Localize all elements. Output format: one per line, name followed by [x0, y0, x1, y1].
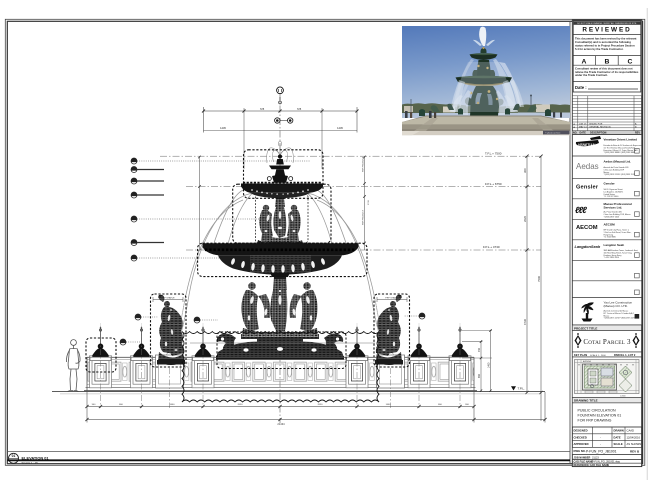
svg-text:▲: ▲ [573, 122, 575, 125]
svg-text:FRP PRODUCT: FRP PRODUCT [363, 209, 365, 225]
svg-text:T +852 2830 3500: T +852 2830 3500 [604, 257, 619, 259]
svg-text:COTAI PARCEL 3: COTAI PARCEL 3 [583, 338, 631, 346]
svg-text:Consultant(s) and is accorded: Consultant(s) and is accorded the follow… [575, 40, 631, 44]
svg-text:REV B: REV B [630, 449, 640, 453]
svg-text:ISSUED FOR: ISSUED FOR [589, 123, 603, 125]
svg-text:Aedas: Aedas [576, 162, 599, 171]
svg-text:DRAWN: DRAWN [614, 429, 624, 433]
svg-text:4730: 4730 [523, 319, 527, 325]
svg-text:FOR FRP DRAWING: FOR FRP DRAWING [578, 419, 612, 423]
svg-text:PROJECT TITLE: PROJECT TITLE [574, 326, 597, 330]
svg-text:This document has been revised: This document has been revised by the re… [575, 37, 636, 41]
svg-text:AS SHOWN: AS SHOWN [627, 442, 642, 446]
svg-text:Aedas (Macau) Ltd.: Aedas (Macau) Ltd. [604, 160, 632, 164]
svg-text:7500: 7500 [537, 276, 541, 282]
svg-text:31123: 31123 [592, 456, 599, 459]
svg-text:▲: ▲ [573, 125, 575, 128]
svg-text:FRP PRODUCT: FRP PRODUCT [363, 156, 365, 172]
svg-text:1460: 1460 [488, 362, 491, 368]
svg-text:LangdonSeah: LangdonSeah [575, 244, 601, 249]
svg-text:2030: 2030 [318, 404, 324, 406]
svg-text:FRP STATUE: FRP STATUE [161, 297, 175, 300]
svg-text:© photo archive: © photo archive [545, 132, 561, 135]
svg-text:T 2 3105 8686: T 2 3105 8686 [604, 237, 616, 239]
svg-text:T (853) 2882 8888 F (853) 288: T (853) 2882 8888 F (853) 2882 8889 [604, 152, 636, 154]
svg-text:T.P.L.: T.P.L. [518, 387, 525, 391]
svg-text:Date :: Date : [575, 85, 587, 90]
svg-text:DWG NO.: DWG NO. [574, 449, 586, 453]
svg-text:1460: 1460 [386, 404, 392, 406]
svg-text:DRAWING TITLE: DRAWING TITLE [574, 399, 598, 403]
svg-text:PARCEL 1, LOT 2: PARCEL 1, LOT 2 [614, 353, 636, 357]
svg-text:01: 01 [12, 454, 16, 458]
svg-text:SCALE 1 : 2000: SCALE 1 : 2000 [590, 354, 606, 357]
svg-text:Langdon Seah: Langdon Seah [604, 243, 625, 247]
svg-text:850: 850 [478, 373, 481, 378]
svg-text:P-FUN_PO_JB1001: P-FUN_PO_JB1001 [586, 449, 617, 453]
svg-text:CAAD: CAAD [627, 429, 635, 433]
svg-text:F.P.L.+ 6750: F.P.L.+ 6750 [485, 182, 502, 186]
svg-text:relieve the Trade Contractor o: relieve the Trade Contractor of its resp… [575, 70, 639, 74]
svg-text:⋮: ⋮ [418, 323, 420, 326]
svg-text:12/04/2016: 12/04/2016 [627, 435, 641, 439]
svg-text:AECOM: AECOM [576, 225, 598, 231]
svg-text:725: 725 [260, 107, 265, 111]
svg-text:JUN 15: JUN 15 [579, 123, 587, 125]
svg-text:DESIGNED: DESIGNED [574, 429, 588, 433]
svg-text:300: 300 [523, 168, 527, 173]
svg-text:B: B [605, 58, 610, 65]
svg-text:Gensler: Gensler [576, 185, 599, 191]
svg-text:C: C [628, 58, 633, 65]
svg-text:725: 725 [297, 107, 302, 111]
svg-text:AVENIDA: AVENIDA [583, 360, 592, 363]
svg-text:DATE: DATE [614, 435, 621, 439]
svg-text:T (853) 2833 1133 F (853) 283: T (853) 2833 1133 F (853) 2833 1552 [604, 174, 635, 176]
svg-text:F.P.L.+ 4730: F.P.L.+ 4730 [483, 245, 500, 249]
svg-text:T (853) 2837 2623: T (853) 2837 2623 [604, 216, 620, 218]
svg-text:21434: 21434 [277, 422, 285, 426]
svg-text:450: 450 [478, 347, 481, 352]
svg-text:(Macau) CO. LTD.: (Macau) CO. LTD. [604, 304, 628, 308]
svg-text:Gensler: Gensler [604, 182, 616, 186]
svg-text:⋮: ⋮ [356, 323, 358, 326]
svg-text:-: - [600, 436, 601, 439]
svg-text:T 1 213 327 3600: T 1 213 327 3600 [604, 196, 619, 198]
svg-text:5.4 for action by the Trade Co: 5.4 for action by the Trade Contractor. [575, 47, 624, 51]
svg-text:under the Trade Contract.: under the Trade Contract. [575, 73, 608, 77]
svg-text:VENETIAN: VENETIAN [578, 143, 596, 147]
svg-text:⋮: ⋮ [140, 323, 142, 326]
svg-text:⋮: ⋮ [459, 323, 461, 326]
svg-text:REVIEWED: REVIEWED [582, 27, 631, 34]
svg-text:Consultant review of this docu: Consultant review of this document does … [575, 66, 633, 70]
svg-text:Venetian Orient Limited: Venetian Orient Limited [604, 138, 638, 142]
svg-text:APPROVED: APPROVED [574, 442, 589, 446]
svg-text:CHECKED: CHECKED [574, 435, 587, 439]
svg-text:1445: 1445 [220, 126, 226, 130]
svg-text:SCALE: SCALE [614, 442, 623, 446]
svg-text:KEY PLAN: KEY PLAN [574, 353, 587, 357]
svg-text:T.F.L.+ 7500: T.F.L.+ 7500 [485, 152, 502, 156]
svg-text:T (853) 2875 2270 F (853) 287: T (853) 2875 2270 F (853) 2875 2275 [604, 318, 636, 320]
svg-text:AECOM: AECOM [604, 223, 616, 227]
svg-text:DO NOT SCALE DRAWING. VERIFY A: DO NOT SCALE DRAWING. VERIFY ALL DIMENSI… [577, 22, 637, 25]
svg-text:⋮: ⋮ [202, 323, 204, 326]
svg-text:1445: 1445 [337, 126, 343, 130]
svg-text:ℓℓℓ: ℓℓℓ [575, 205, 587, 215]
svg-text:1:2000: 1:2000 [620, 395, 626, 397]
svg-text:1460: 1460 [170, 404, 176, 406]
svg-text:JOB NUMBER: JOB NUMBER [574, 456, 591, 459]
svg-text:FRP STATUE: FRP STATUE [385, 297, 399, 300]
svg-text:PUBLIC CIRCULATION: PUBLIC CIRCULATION [578, 409, 616, 413]
svg-text:2020: 2020 [523, 216, 527, 222]
svg-text:REFERENCE CAD FILE NAME: REFERENCE CAD FILE NAME [574, 464, 610, 467]
svg-text:status referred to in Project: status referred to in Project Procedure … [575, 43, 635, 47]
svg-text:FOUNTAIN ELEVATION 01: FOUNTAIN ELEVATION 01 [578, 414, 622, 418]
svg-text:-: - [600, 443, 601, 446]
svg-text:2030: 2030 [238, 404, 244, 406]
svg-text:GENERAL REVISION: GENERAL REVISION [589, 125, 611, 128]
svg-text:Services Ltd.: Services Ltd. [604, 206, 623, 210]
svg-text:SCALE 1 : 25: SCALE 1 : 25 [22, 461, 39, 465]
svg-text:A: A [582, 58, 587, 65]
svg-text:⋮: ⋮ [99, 323, 101, 326]
svg-text:MAY 13: MAY 13 [579, 125, 587, 128]
